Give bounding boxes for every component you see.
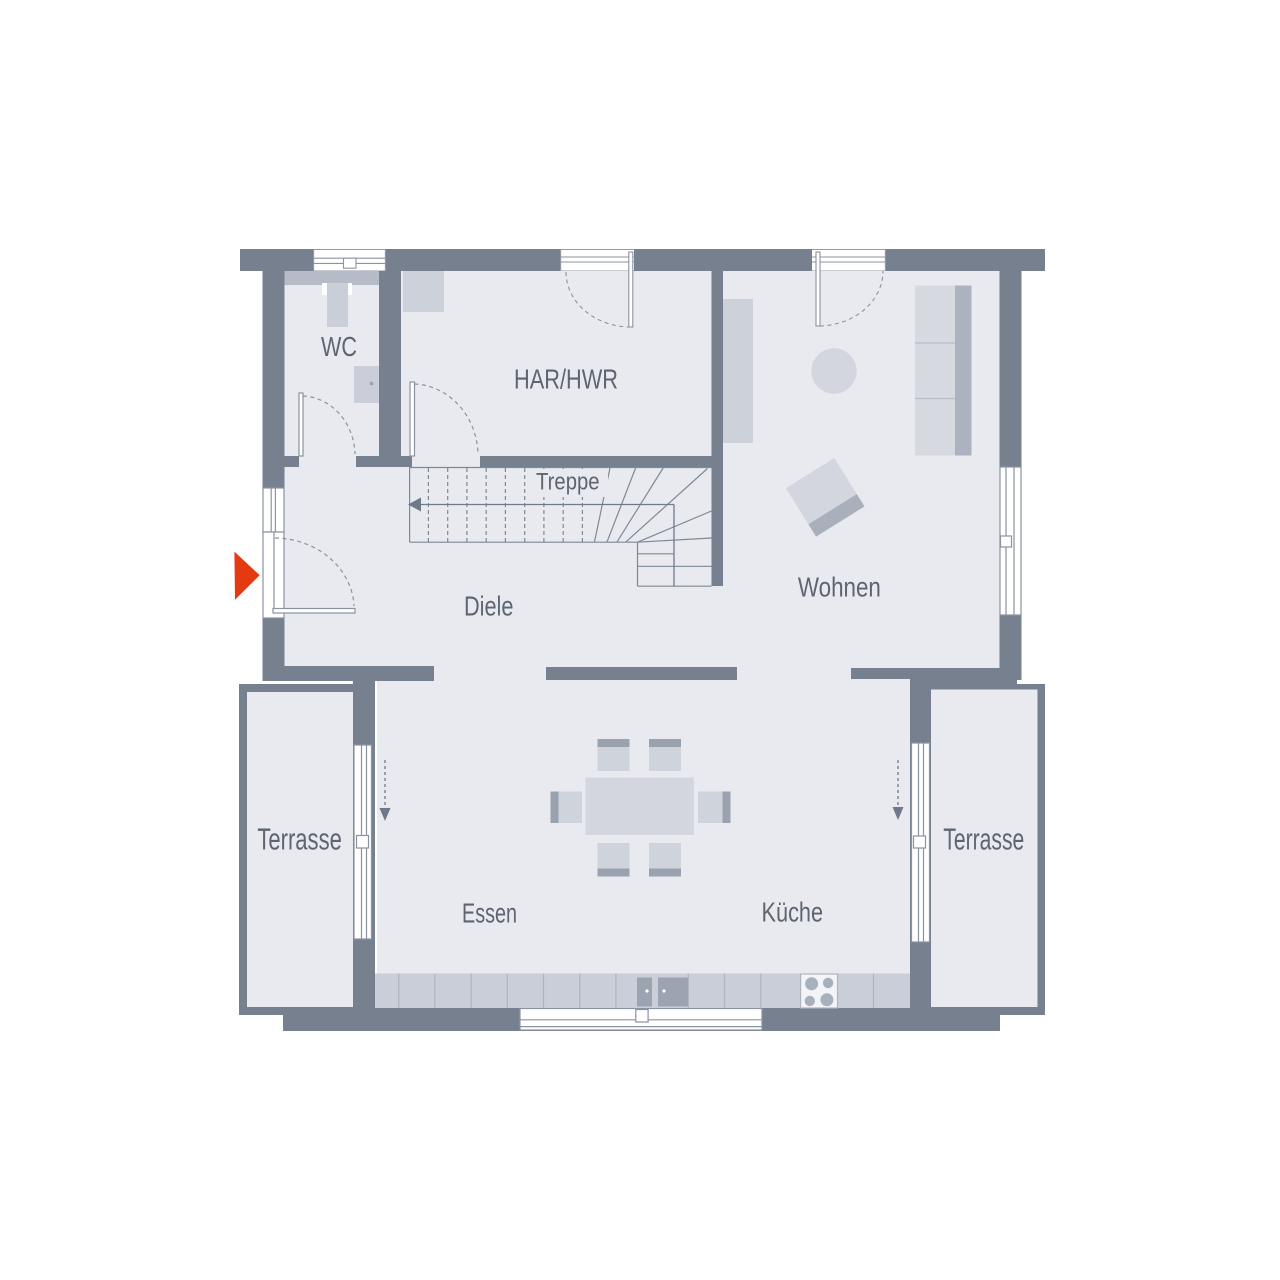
svg-text:Essen: Essen — [462, 898, 517, 929]
svg-text:Wohnen: Wohnen — [798, 572, 881, 603]
svg-text:WC: WC — [321, 331, 357, 362]
svg-text:Treppe: Treppe — [536, 469, 600, 496]
svg-text:Küche: Küche — [762, 897, 824, 928]
svg-text:Diele: Diele — [464, 591, 514, 622]
svg-text:HAR/HWR: HAR/HWR — [514, 364, 618, 395]
svg-text:Terrasse: Terrasse — [257, 822, 342, 857]
svg-text:Terrasse: Terrasse — [943, 822, 1024, 857]
